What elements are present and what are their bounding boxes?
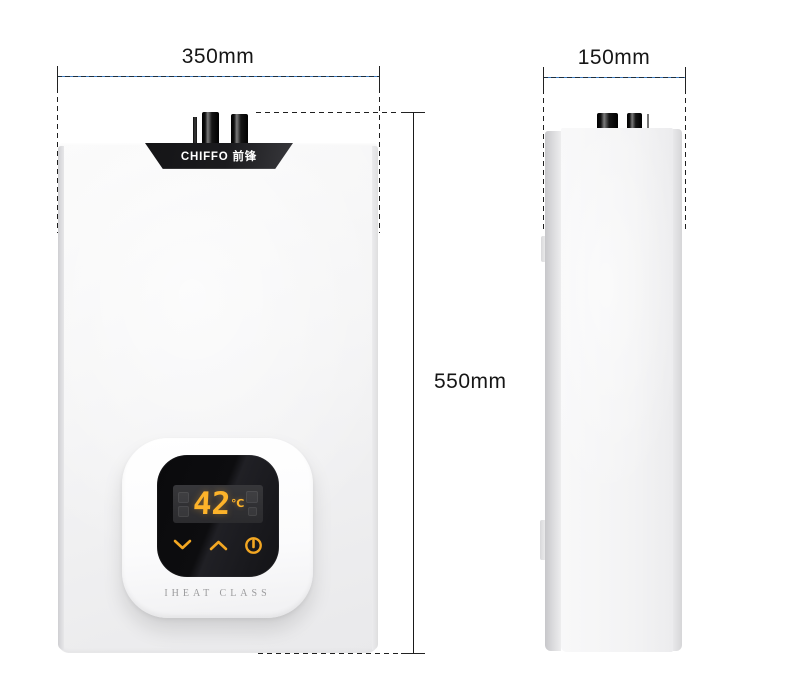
depth-extension-line-right [685,89,686,233]
front-flue-pipe-right [231,114,248,144]
lcd-ghost-icon-top-right [246,491,258,503]
height-dimension-tick-bottom [401,653,425,654]
side-front-face [545,131,561,651]
depth-dimension-line [543,77,685,78]
depth-dimension-tick-right [685,67,686,89]
side-back-edge [673,129,682,651]
front-flue-pipe-main [202,112,219,144]
height-dimension-line [413,112,414,653]
height-reference-line-top [256,112,397,113]
brand-logo: CHIFFO 前锋 [181,148,257,166]
front-flue-pipe-thin [193,117,197,144]
width-dimension-line [57,76,379,77]
chevron-up-icon [209,539,228,551]
chevron-down-icon [173,539,192,551]
height-dimension-label: 550mm [434,370,507,394]
width-extension-line-left [57,88,58,233]
height-reference-line-bottom [258,653,400,654]
depth-dimension-label: 150mm [543,46,685,70]
temperature-unit: ℃ [231,497,244,510]
temperature-value: 42 [192,489,231,520]
side-body [561,128,673,652]
touch-button-row [157,534,279,556]
front-body-left-edge [58,146,64,650]
lcd-ghost-icon-top-left [178,492,189,503]
depth-dimension-tick-left [543,67,544,89]
series-caption: IHEAT CLASS [122,588,313,599]
product-dimension-diagram: CHIFFO 前锋 42℃ IHEA [0,0,790,684]
front-body-right-edge [372,146,378,650]
width-dimension-tick-right [379,66,380,88]
depth-extension-line-left [543,89,544,233]
width-dimension-tick-left [57,66,58,88]
lcd-display: 42℃ [173,485,263,523]
lcd-ghost-icon-bottom-left [178,506,189,517]
lcd-ghost-icon-bottom-right [248,507,257,516]
width-dimension-label: 350mm [57,45,379,69]
brand-panel: CHIFFO 前锋 [145,143,293,170]
power-icon [244,536,263,555]
width-extension-line-right [379,88,380,233]
